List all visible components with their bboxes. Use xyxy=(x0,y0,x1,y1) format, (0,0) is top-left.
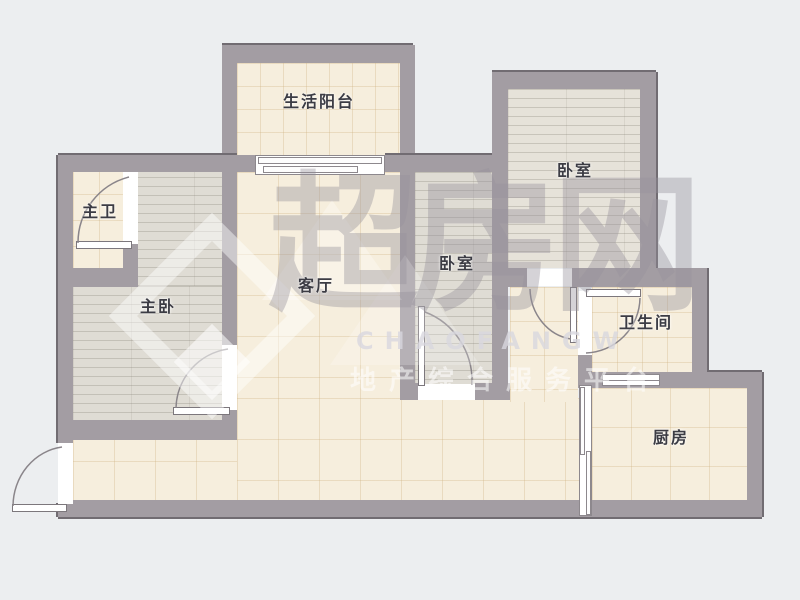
wall xyxy=(58,268,138,287)
kitchen-window-mullion xyxy=(603,380,659,381)
room-label-bedroom-center: 卧室 xyxy=(439,250,475,274)
wall xyxy=(492,72,508,172)
bedroom-top-right-door-opening xyxy=(527,269,572,286)
kitchen-sliding-door-panel xyxy=(586,451,591,515)
wall xyxy=(572,268,707,287)
wall xyxy=(492,72,656,89)
room-label-master-bedroom: 主卧 xyxy=(140,293,176,317)
wall xyxy=(640,72,656,285)
bedroom-top-right-door-leaf xyxy=(570,287,577,343)
wall xyxy=(222,45,237,172)
bathroom-door-opening xyxy=(578,291,592,355)
entry-door-arc xyxy=(13,447,62,506)
room-label-living-room: 客厅 xyxy=(298,272,334,296)
bedroom-center-door-opening xyxy=(418,384,475,400)
entry-door-leaf xyxy=(12,504,67,512)
master-bath-door-opening xyxy=(123,172,138,244)
balcony-sliding-door-panel xyxy=(258,157,382,164)
wall xyxy=(692,268,707,388)
wall xyxy=(492,172,508,400)
master-bath-door-leaf xyxy=(76,241,132,249)
kitchen-window xyxy=(602,374,660,386)
wall xyxy=(58,420,237,440)
bathroom-door-leaf xyxy=(586,289,641,297)
wall xyxy=(222,45,413,63)
wall xyxy=(400,383,418,400)
room-label-master-bath: 主卫 xyxy=(82,198,118,222)
dining-hall-floor xyxy=(237,398,580,502)
wall xyxy=(58,155,237,172)
kitchen-sliding-door-panel xyxy=(580,387,585,455)
room-label-bathroom: 卫生间 xyxy=(619,309,673,333)
wall xyxy=(508,268,527,287)
entry-door-opening xyxy=(58,443,73,504)
balcony-sliding-door-panel xyxy=(263,166,358,173)
room-label-kitchen: 厨房 xyxy=(653,424,689,448)
wall xyxy=(747,372,762,517)
wall xyxy=(385,155,492,172)
floor-plan: 超房网 CHAOFANGW 地产综合服务平台 生活阳台 主卫 主卧 客厅 卧室 … xyxy=(0,0,800,600)
room-label-bedroom-top-right: 卧室 xyxy=(557,157,593,181)
wall xyxy=(58,500,592,517)
vestibule-floor xyxy=(510,287,578,402)
wall xyxy=(58,155,73,443)
wall xyxy=(592,500,762,517)
room-label-balcony: 生活阳台 xyxy=(283,88,355,112)
